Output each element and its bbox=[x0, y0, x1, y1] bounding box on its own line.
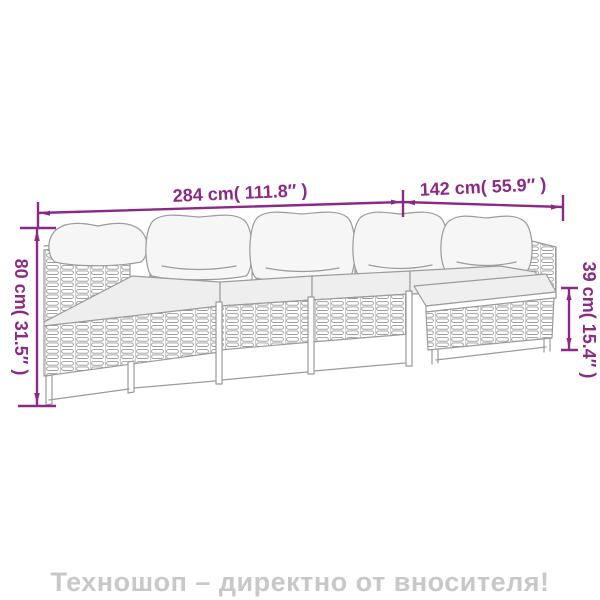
sofa-set-line-drawing bbox=[0, 0, 600, 600]
store-watermark: Техношоп – директно от вносителя! bbox=[0, 567, 600, 598]
arrowhead-down bbox=[566, 338, 571, 348]
product-dimension-diagram: 284 cm( 111.8″ ) 142 cm( 55.9″ ) 80 cm( … bbox=[0, 0, 600, 600]
arrowhead-left bbox=[40, 211, 50, 216]
dimension-label-back-height: 80 cm( 31.5″ ) bbox=[11, 227, 31, 407]
sofa-figure bbox=[44, 212, 556, 405]
footstool bbox=[414, 274, 556, 364]
arrowhead-down bbox=[34, 393, 40, 404]
arrowhead-up bbox=[566, 290, 571, 300]
right-dimension-line bbox=[561, 288, 578, 350]
dimension-label-seat-height: 39 cm( 15.4″ ) bbox=[579, 230, 599, 410]
arrowhead-up bbox=[34, 230, 40, 241]
arrowhead-right bbox=[551, 204, 561, 209]
